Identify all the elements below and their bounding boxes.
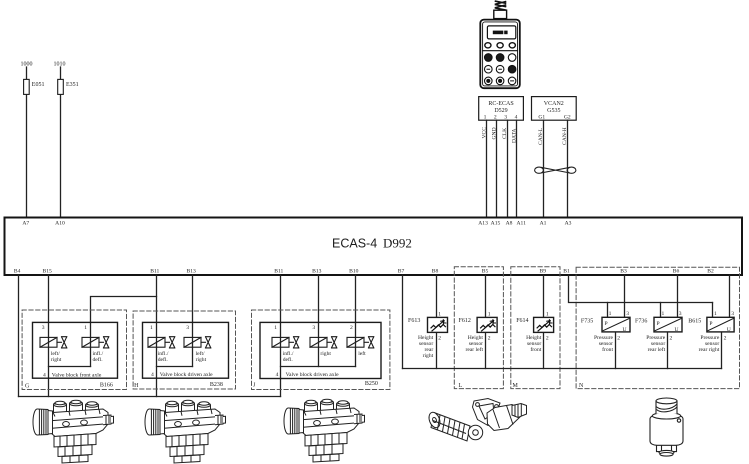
svg-text:D992: D992 — [383, 236, 412, 251]
svg-text:A13: A13 — [478, 221, 488, 227]
svg-text:defl.: defl. — [283, 356, 294, 363]
svg-text:front: front — [602, 346, 613, 353]
svg-text:3: 3 — [186, 325, 189, 331]
svg-text:B15: B15 — [43, 269, 53, 275]
svg-text:B11: B11 — [274, 269, 283, 275]
svg-text:rear left: rear left — [648, 346, 666, 353]
svg-text:left/: left/ — [51, 350, 60, 357]
svg-text:ECAS-4: ECAS-4 — [332, 237, 377, 251]
svg-text:G535: G535 — [547, 108, 560, 114]
svg-text:VCAN2: VCAN2 — [544, 101, 564, 107]
svg-text:2: 2 — [438, 335, 441, 341]
svg-text:F735: F735 — [581, 318, 593, 324]
svg-text:infl./: infl./ — [283, 350, 294, 357]
svg-text:3: 3 — [42, 325, 45, 331]
svg-text:P: P — [605, 321, 608, 327]
svg-text:3: 3 — [731, 311, 734, 317]
svg-text:infl./: infl./ — [158, 350, 169, 357]
svg-text:A11: A11 — [516, 221, 526, 227]
svg-text:right: right — [320, 351, 331, 357]
svg-text:H: H — [134, 383, 139, 389]
svg-text:B6: B6 — [673, 269, 680, 275]
svg-text:A3: A3 — [565, 221, 572, 227]
svg-text:U: U — [675, 327, 679, 333]
svg-text:1: 1 — [488, 311, 491, 317]
svg-text:1: 1 — [84, 325, 87, 331]
svg-text:B238: B238 — [210, 382, 223, 388]
svg-text:A7: A7 — [22, 221, 29, 227]
svg-text:4: 4 — [276, 372, 279, 378]
svg-text:4: 4 — [151, 372, 154, 378]
svg-text:3: 3 — [312, 325, 315, 331]
svg-text:1010: 1010 — [54, 62, 66, 68]
svg-text:B11: B11 — [150, 269, 159, 275]
svg-text:2: 2 — [350, 325, 353, 331]
svg-text:CAN-L: CAN-L — [538, 127, 544, 145]
svg-text:G1: G1 — [538, 115, 545, 121]
svg-text:CAN-H: CAN-H — [562, 127, 568, 145]
svg-text:right: right — [51, 357, 62, 363]
svg-text:P: P — [709, 321, 712, 327]
svg-text:U: U — [623, 327, 627, 333]
svg-text:front: front — [530, 346, 541, 353]
svg-text:B3: B3 — [620, 269, 627, 275]
svg-text:left: left — [358, 350, 366, 357]
svg-text:G: G — [25, 384, 30, 390]
svg-text:A10: A10 — [55, 221, 65, 227]
svg-text:Valve block driven axle: Valve block driven axle — [160, 372, 213, 378]
svg-text:B1: B1 — [563, 269, 570, 275]
svg-text:left/: left/ — [196, 350, 205, 357]
svg-text:B10: B10 — [349, 269, 359, 275]
svg-text:right: right — [423, 353, 434, 359]
svg-text:2: 2 — [670, 335, 673, 341]
svg-text:B2: B2 — [707, 269, 714, 275]
svg-text:F612: F612 — [459, 318, 471, 324]
svg-text:B13: B13 — [187, 269, 197, 275]
svg-text:F614: F614 — [516, 318, 528, 324]
svg-text:U: U — [727, 327, 731, 333]
svg-text:GND: GND — [492, 127, 498, 139]
svg-text:3: 3 — [504, 115, 507, 121]
svg-text:VCC: VCC — [481, 127, 487, 139]
svg-text:B615: B615 — [688, 318, 701, 324]
svg-text:right: right — [196, 357, 207, 363]
svg-text:1: 1 — [609, 311, 612, 317]
svg-text:defl.: defl. — [93, 356, 104, 363]
svg-text:1: 1 — [274, 325, 277, 331]
svg-text:2: 2 — [546, 335, 549, 341]
svg-text:CLK: CLK — [502, 128, 508, 139]
svg-text:B5: B5 — [482, 269, 489, 275]
svg-text:A1: A1 — [540, 221, 547, 227]
svg-text:F736: F736 — [635, 318, 647, 324]
svg-text:B9: B9 — [540, 269, 547, 275]
svg-text:B4: B4 — [14, 269, 21, 275]
svg-text:3: 3 — [679, 311, 682, 317]
svg-text:2: 2 — [617, 335, 620, 341]
svg-text:DATA: DATA — [512, 129, 518, 143]
svg-text:2: 2 — [488, 335, 491, 341]
svg-text:2: 2 — [724, 335, 727, 341]
svg-text:L: L — [459, 383, 463, 389]
svg-text:RC-ECAS: RC-ECAS — [488, 101, 513, 107]
svg-text:F613: F613 — [408, 318, 420, 324]
svg-text:E351: E351 — [66, 82, 79, 88]
svg-text:A15: A15 — [491, 221, 501, 227]
svg-text:1: 1 — [714, 311, 717, 317]
svg-text:P: P — [657, 321, 660, 327]
svg-text:infl./: infl./ — [93, 350, 104, 357]
svg-text:1: 1 — [662, 311, 665, 317]
svg-text:N: N — [579, 383, 584, 389]
svg-text:B250: B250 — [365, 381, 378, 387]
svg-text:E051: E051 — [32, 82, 45, 88]
svg-text:1: 1 — [150, 325, 153, 331]
svg-text:D529: D529 — [494, 108, 507, 114]
svg-text:4: 4 — [43, 373, 46, 379]
svg-text:M: M — [513, 383, 519, 389]
svg-text:A8: A8 — [506, 221, 513, 227]
svg-text:B13: B13 — [312, 269, 322, 275]
svg-text:3: 3 — [626, 311, 629, 317]
svg-text:Valve block driven axle: Valve block driven axle — [286, 372, 339, 378]
svg-text:Valve block front axle: Valve block front axle — [52, 372, 102, 379]
svg-text:defl.: defl. — [158, 356, 169, 363]
svg-text:rear left: rear left — [465, 346, 483, 353]
svg-text:B7: B7 — [398, 269, 405, 275]
svg-text:1: 1 — [438, 311, 441, 317]
svg-text:B8: B8 — [432, 269, 439, 275]
svg-text:1: 1 — [546, 311, 549, 317]
svg-text:1000: 1000 — [21, 62, 33, 68]
svg-text:B166: B166 — [100, 383, 113, 389]
svg-text:rear right: rear right — [699, 347, 720, 353]
